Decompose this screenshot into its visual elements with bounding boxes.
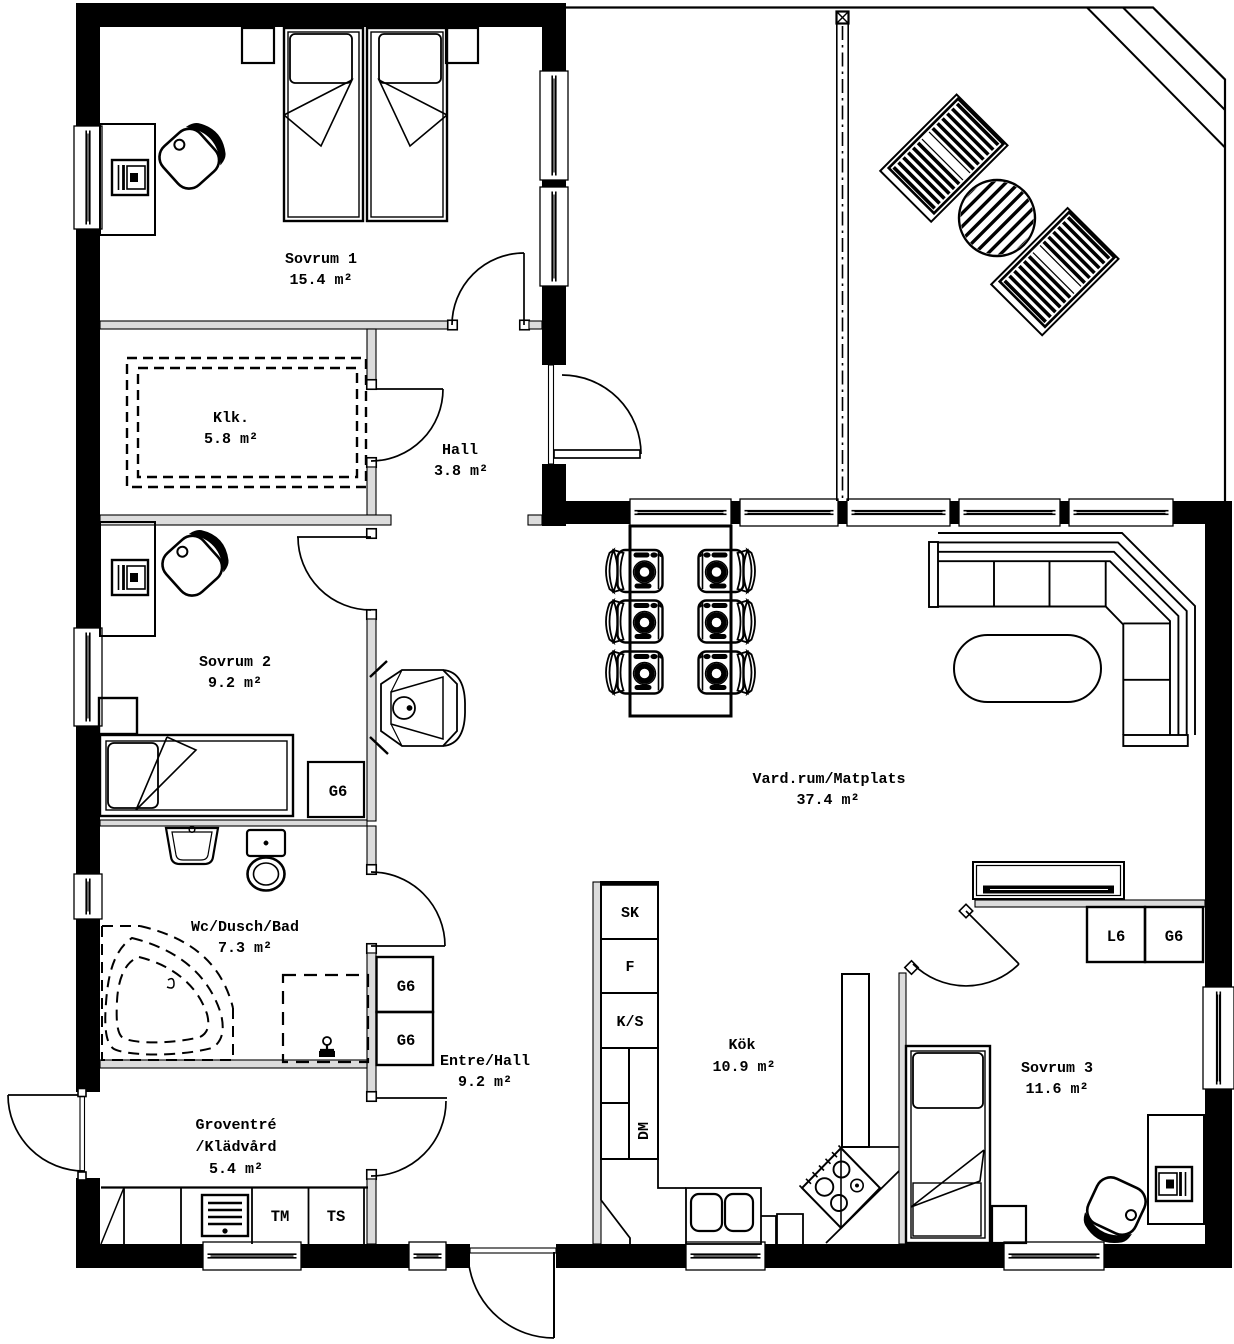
svg-text:G6: G6: [397, 1032, 416, 1050]
svg-text:K/S: K/S: [616, 1014, 643, 1031]
svg-text:F: F: [625, 959, 634, 976]
svg-text:G6: G6: [1165, 928, 1184, 946]
svg-text:11.6 m²: 11.6 m²: [1025, 1081, 1088, 1098]
svg-text:3.8 m²: 3.8 m²: [434, 463, 488, 480]
svg-text:10.9 m²: 10.9 m²: [712, 1059, 775, 1076]
svg-text:Groventré: Groventré: [195, 1117, 276, 1134]
svg-text:G6: G6: [397, 978, 416, 996]
svg-text:/Klädvård: /Klädvård: [195, 1139, 276, 1156]
svg-text:Wc/Dusch/Bad: Wc/Dusch/Bad: [191, 919, 299, 936]
svg-text:Sovrum 2: Sovrum 2: [199, 654, 271, 671]
svg-text:Vard.rum/Matplats: Vard.rum/Matplats: [752, 771, 905, 788]
svg-text:5.4 m²: 5.4 m²: [209, 1161, 263, 1178]
svg-text:TM: TM: [271, 1208, 290, 1226]
svg-text:9.2 m²: 9.2 m²: [458, 1074, 512, 1091]
svg-text:15.4 m²: 15.4 m²: [289, 272, 352, 289]
svg-text:G6: G6: [329, 783, 348, 801]
svg-text:37.4 m²: 37.4 m²: [796, 792, 859, 809]
svg-text:Hall: Hall: [442, 442, 478, 459]
svg-text:TS: TS: [327, 1208, 346, 1226]
svg-text:Kök: Kök: [728, 1037, 755, 1054]
svg-text:Sovrum 1: Sovrum 1: [285, 251, 357, 268]
svg-text:SK: SK: [621, 905, 639, 922]
svg-text:DM: DM: [636, 1122, 653, 1140]
svg-text:Sovrum 3: Sovrum 3: [1021, 1060, 1093, 1077]
svg-text:5.8 m²: 5.8 m²: [204, 431, 258, 448]
svg-text:7.3 m²: 7.3 m²: [218, 940, 272, 957]
svg-text:9.2 m²: 9.2 m²: [208, 675, 262, 692]
svg-text:Entre/Hall: Entre/Hall: [440, 1053, 530, 1070]
svg-text:L6: L6: [1107, 928, 1126, 946]
svg-text:Klk.: Klk.: [213, 410, 249, 427]
